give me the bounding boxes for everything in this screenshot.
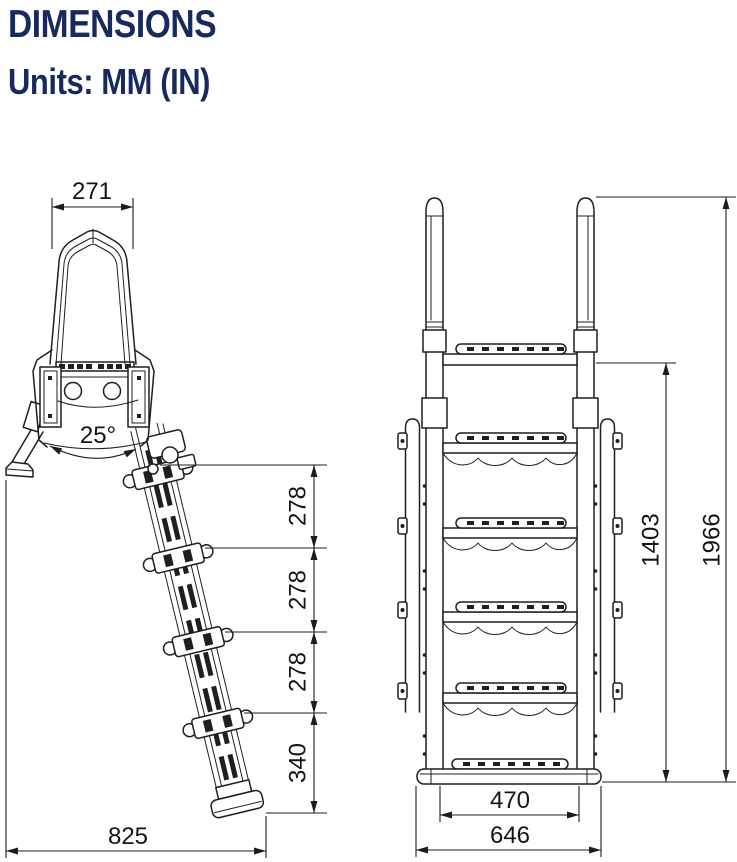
dim-platform-height: 1403 bbox=[596, 363, 676, 782]
dim-label-step-spacing-lower: 278 bbox=[284, 652, 311, 692]
page: DIMENSIONS Units: MM (IN) bbox=[0, 0, 737, 862]
dim-base-inner-width: 470 bbox=[440, 786, 579, 822]
dim-label-base-depth: 825 bbox=[108, 823, 148, 850]
dim-leg-angle: 25° bbox=[50, 422, 136, 458]
ladder-front-view bbox=[398, 198, 622, 784]
dim-label-leg-angle: 25° bbox=[80, 422, 116, 449]
ladder-side-view bbox=[6, 229, 274, 821]
dimension-annotations: 271 25° 278 278 278 340 825 bbox=[6, 178, 736, 858]
front-outer-rails bbox=[406, 419, 615, 712]
side-sloped-rail bbox=[112, 418, 274, 822]
side-handle-arch bbox=[50, 229, 136, 364]
front-top-platform bbox=[443, 344, 577, 365]
dim-label-bottom-section: 340 bbox=[284, 743, 311, 783]
dim-label-step-spacing-middle: 278 bbox=[284, 570, 311, 610]
dim-label-total-height: 1966 bbox=[698, 513, 725, 566]
dim-label-top-width: 271 bbox=[72, 178, 112, 205]
dim-label-base-outer-width: 646 bbox=[490, 822, 530, 849]
ladder-dimension-drawing: 271 25° 278 278 278 340 825 bbox=[0, 0, 737, 862]
dim-label-platform-height: 1403 bbox=[637, 513, 664, 566]
dim-label-step-spacing-upper: 278 bbox=[284, 486, 311, 526]
front-base bbox=[417, 759, 601, 784]
front-steps bbox=[398, 433, 622, 756]
dim-label-base-inner-width: 470 bbox=[490, 787, 530, 814]
